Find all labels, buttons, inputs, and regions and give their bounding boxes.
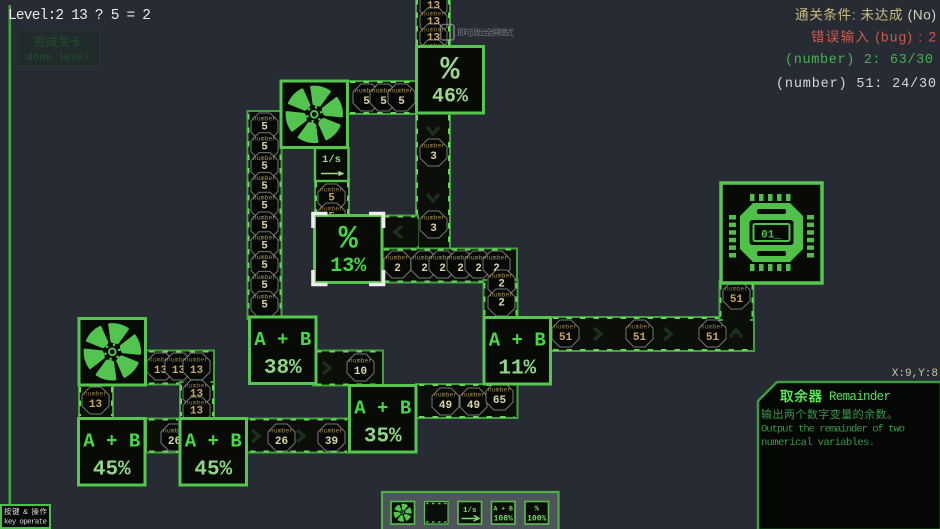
svg-text:13: 13 xyxy=(190,365,204,377)
svg-text:10: 10 xyxy=(354,366,367,378)
svg-text:Level:2 13 ? 5 = 2: Level:2 13 ? 5 = 2 xyxy=(8,8,151,24)
svg-text:number: number xyxy=(185,357,209,364)
svg-text:46%: 46% xyxy=(432,86,469,109)
svg-text:number: number xyxy=(628,324,652,331)
svg-text:通关条件: 未达成 (No): 通关条件: 未达成 (No) xyxy=(795,7,936,23)
svg-text:number: number xyxy=(422,215,446,222)
svg-text:13%: 13% xyxy=(330,255,367,278)
svg-text:A + B: A + B xyxy=(489,329,546,351)
svg-text:39: 39 xyxy=(325,436,338,448)
svg-text:5: 5 xyxy=(363,96,370,108)
svg-text:5: 5 xyxy=(261,122,268,134)
svg-text:49: 49 xyxy=(467,400,480,412)
svg-text:A + B: A + B xyxy=(354,397,411,419)
svg-text:%: % xyxy=(534,506,539,514)
svg-text:2: 2 xyxy=(394,263,401,275)
svg-text:number: number xyxy=(434,392,458,399)
svg-text:number: number xyxy=(320,428,344,435)
svg-text:13: 13 xyxy=(89,399,103,411)
svg-text:2: 2 xyxy=(475,263,482,275)
svg-text:5: 5 xyxy=(261,240,268,252)
svg-text:A + B: A + B xyxy=(254,329,311,351)
svg-text:number: number xyxy=(701,324,725,331)
svg-text:45%: 45% xyxy=(93,459,131,482)
svg-text:A + B: A + B xyxy=(493,506,513,513)
svg-text:完成关卡: 完成关卡 xyxy=(34,34,82,49)
svg-text:35%: 35% xyxy=(364,426,402,449)
svg-text:5: 5 xyxy=(261,141,268,153)
svg-text:65: 65 xyxy=(493,395,507,407)
svg-text:X:9,Y:8: X:9,Y:8 xyxy=(892,368,938,380)
svg-text:number: number xyxy=(488,387,512,394)
svg-text:2: 2 xyxy=(498,298,505,310)
svg-text:45%: 45% xyxy=(194,459,232,482)
svg-text:key operate: key operate xyxy=(4,519,47,527)
svg-text:5: 5 xyxy=(261,181,268,193)
svg-text:取余器: 取余器 xyxy=(780,388,823,404)
svg-text:5: 5 xyxy=(261,300,268,312)
svg-text:1/s: 1/s xyxy=(463,507,477,515)
svg-text:5: 5 xyxy=(398,96,405,108)
svg-text:number: number xyxy=(270,428,294,435)
svg-text:5: 5 xyxy=(261,221,268,233)
svg-text:A + B: A + B xyxy=(185,430,242,452)
svg-text:(number) 51: 24/30: (number) 51: 24/30 xyxy=(776,77,936,92)
svg-text:5: 5 xyxy=(380,96,387,108)
svg-text:number: number xyxy=(462,392,486,399)
svg-text:38%: 38% xyxy=(264,357,302,380)
svg-text:49: 49 xyxy=(439,400,452,412)
svg-text:number: number xyxy=(422,143,446,150)
svg-text:number: number xyxy=(485,255,509,262)
svg-text:5: 5 xyxy=(261,201,268,213)
svg-text:11%: 11% xyxy=(498,358,536,381)
svg-text:number: number xyxy=(554,324,578,331)
svg-text:number: number xyxy=(386,255,410,262)
svg-text:number: number xyxy=(390,88,414,95)
svg-text:01_: 01_ xyxy=(761,230,781,242)
svg-text:3: 3 xyxy=(430,151,437,163)
svg-text:2: 2 xyxy=(457,263,464,275)
svg-text:51: 51 xyxy=(633,332,647,344)
svg-text:number: number xyxy=(84,391,108,398)
svg-text:5: 5 xyxy=(261,161,268,173)
svg-text:number: number xyxy=(725,286,749,293)
svg-text:%: % xyxy=(339,221,359,258)
svg-text:done level: done level xyxy=(26,52,89,64)
svg-text:3: 3 xyxy=(430,223,437,235)
svg-text:(number) 2: 63/30: (number) 2: 63/30 xyxy=(785,53,933,68)
svg-text:A + B: A + B xyxy=(83,430,140,452)
svg-text:2: 2 xyxy=(439,263,446,275)
svg-text:Remainder: Remainder xyxy=(829,390,891,404)
svg-text:51: 51 xyxy=(559,332,573,344)
svg-text:Output the remainder of two: Output the remainder of two xyxy=(761,424,905,436)
svg-text:输出两个数字变量的余数。: 输出两个数字变量的余数。 xyxy=(761,407,898,421)
svg-text:5: 5 xyxy=(261,280,268,292)
svg-text:13: 13 xyxy=(190,406,204,418)
svg-text:51: 51 xyxy=(730,294,744,306)
svg-text:51: 51 xyxy=(706,332,720,344)
svg-text:2: 2 xyxy=(421,263,428,275)
svg-text:100%: 100% xyxy=(494,515,513,524)
svg-text:1/s: 1/s xyxy=(322,154,341,166)
svg-text:%: % xyxy=(440,51,460,88)
svg-text:26: 26 xyxy=(275,436,288,448)
svg-text:即可退出全屏模式: 即可退出全屏模式 xyxy=(457,27,514,38)
svg-text:number: number xyxy=(349,358,373,365)
svg-text:按键 & 操作: 按键 & 操作 xyxy=(4,506,48,516)
svg-text:numerical variables.: numerical variables. xyxy=(761,437,875,449)
svg-text:5: 5 xyxy=(261,260,268,272)
svg-text:100%: 100% xyxy=(527,515,546,524)
